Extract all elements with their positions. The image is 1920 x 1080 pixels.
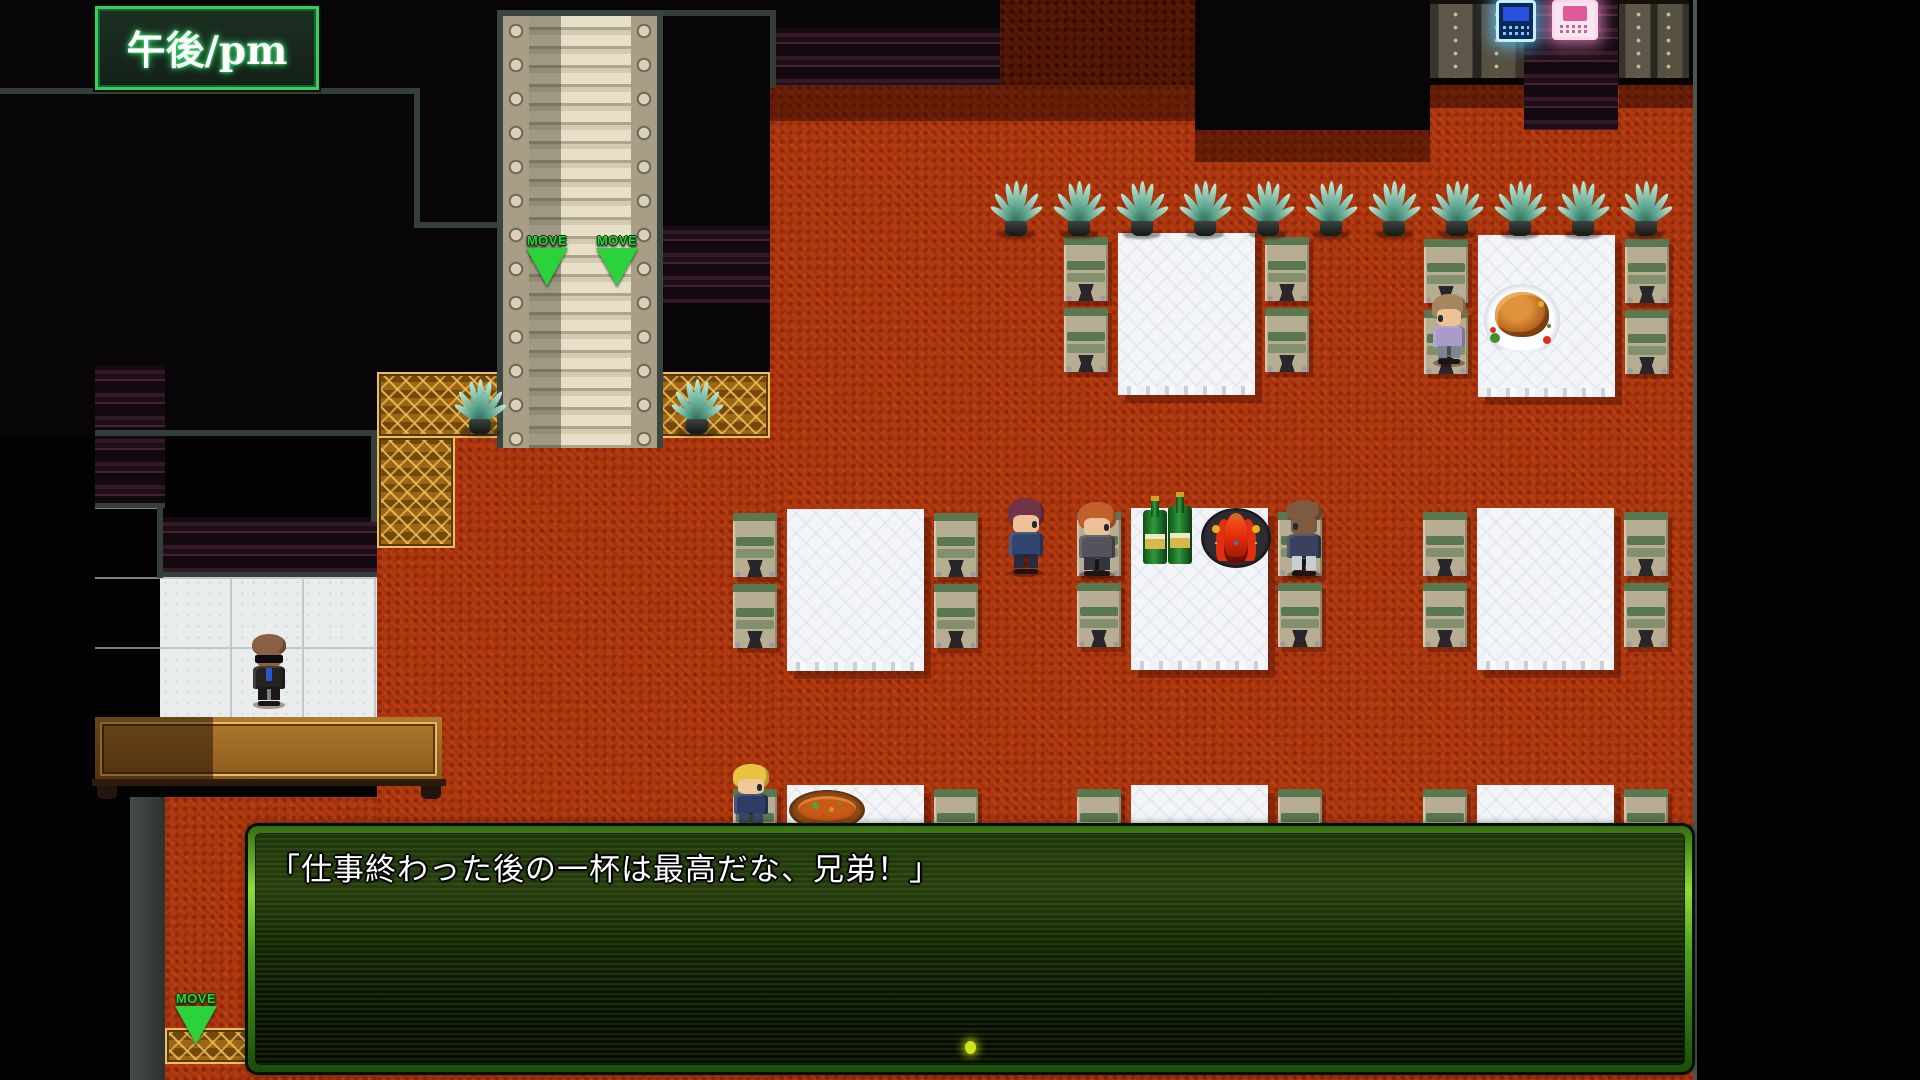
move-transfer-marker[interactable]: MOVE (164, 992, 228, 1044)
time-of-day-label: 午後/pm (127, 20, 288, 76)
move-label: MOVE (164, 992, 228, 1006)
message-window[interactable]: 「仕事終わった後の一杯は最高だな、兄弟！」 (248, 826, 1692, 1072)
message-window-fill: 「仕事終わった後の一杯は最高だな、兄弟！」 (255, 833, 1685, 1065)
message-continue-indicator (965, 1041, 976, 1054)
move-arrow-down-icon (175, 1006, 217, 1044)
game-screen: MOVEMOVEMOVEMOVEMOVE 午後/pm 「仕事終わった後の一杯は最… (0, 0, 1920, 1080)
move-arrow-down-icon (526, 248, 568, 286)
move-transfer-marker[interactable]: MOVE (515, 234, 579, 286)
move-transfer-marker[interactable]: MOVE (585, 234, 649, 286)
move-arrow-down-icon (596, 248, 638, 286)
message-text: 「仕事終わった後の一杯は最高だな、兄弟！」 (269, 849, 1661, 891)
move-label: MOVE (515, 234, 579, 248)
time-of-day-badge: 午後/pm (95, 6, 319, 90)
move-label: MOVE (585, 234, 649, 248)
